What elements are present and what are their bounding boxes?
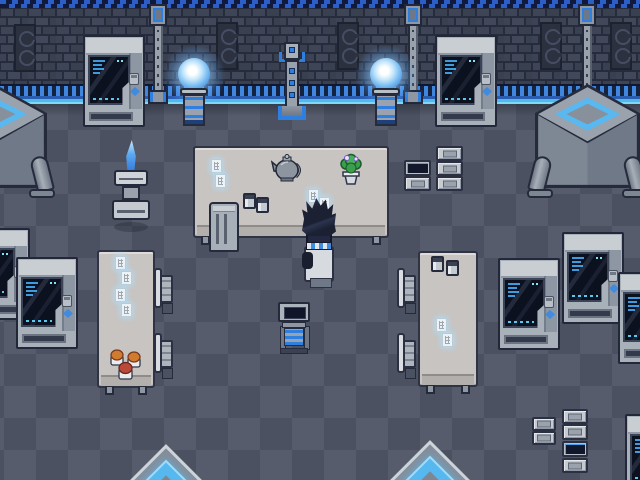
terminal-screen — [88, 55, 130, 105]
crate-bottom-d4 — [562, 458, 588, 473]
speaker-circle-icon — [19, 31, 35, 47]
right-table-mug-2 — [446, 260, 459, 276]
main-table-paper-1 — [211, 159, 222, 173]
terminal-screen — [567, 252, 609, 302]
pipe-flange — [29, 189, 55, 198]
crate-bottom-c1 — [532, 417, 556, 431]
pedestal-shadow — [114, 222, 148, 232]
seated-character[interactable] — [300, 198, 338, 292]
terminal-right-upper[interactable] — [562, 232, 624, 324]
left-table-paper-4 — [121, 303, 132, 317]
crate-mid-b1 — [436, 146, 463, 161]
terminal-screen — [623, 292, 640, 342]
totem-light — [289, 68, 295, 74]
terminal-slot — [22, 334, 66, 343]
table-leg — [138, 385, 147, 395]
cart-rail — [304, 326, 310, 350]
terminal-screen — [21, 277, 63, 327]
right-table-chair-1 — [397, 266, 417, 316]
orb-lamp-right — [368, 58, 404, 128]
chair-leg — [405, 303, 416, 314]
terminal-screen — [503, 278, 545, 328]
terminal-right-edge[interactable] — [618, 272, 640, 364]
character-belt — [306, 242, 332, 250]
teleporter-pad-bottom-center[interactable] — [365, 443, 495, 480]
crate-mid-b2 — [436, 161, 463, 176]
terminal-top-left[interactable] — [83, 35, 145, 127]
speaker-circle-icon — [342, 29, 358, 45]
lamp-base — [183, 94, 205, 126]
teleporter-cube-top-right[interactable] — [535, 84, 640, 188]
cart-neck — [282, 322, 306, 328]
terminal-top-right[interactable] — [435, 35, 497, 127]
orange-lid-jars — [108, 346, 144, 382]
game-scene[interactable] — [0, 0, 640, 480]
chair-back — [397, 268, 405, 308]
main-table-paper-2 — [215, 174, 226, 188]
table-leg — [105, 385, 114, 395]
pillar-stem — [582, 26, 592, 92]
right-table-mug-1 — [431, 256, 444, 272]
speaker-circle-icon — [19, 50, 35, 66]
main-table-mug-1 — [243, 193, 256, 209]
crate-mid-b3 — [436, 176, 463, 191]
wall-speaker-panel-5 — [610, 22, 632, 70]
signal-totem — [276, 42, 308, 124]
pedestal-bowl — [114, 170, 148, 186]
chair-back — [154, 268, 162, 308]
speaker-circle-icon — [615, 48, 631, 64]
crate-mid-a2 — [404, 176, 431, 191]
lamp-base — [375, 94, 397, 126]
terminal-slot — [504, 335, 548, 344]
terminal-bottom-edge[interactable] — [625, 414, 640, 480]
crate-bottom-d1 — [562, 409, 588, 424]
right-table-paper-1 — [436, 318, 447, 332]
orb-lamp-left — [176, 58, 212, 128]
terminal-knob[interactable] — [62, 295, 72, 307]
character-arm — [302, 252, 313, 269]
terminal-screen — [440, 55, 482, 105]
wall-top-trim — [0, 0, 640, 8]
left-table-paper-1 — [115, 256, 126, 270]
table-radiator — [209, 202, 239, 252]
pipe-flange — [527, 189, 553, 198]
chair-back — [154, 333, 162, 373]
terminal-slot — [624, 349, 640, 358]
crate-bottom-c2 — [532, 431, 556, 445]
terminal-knob[interactable] — [608, 270, 618, 282]
table-leg — [372, 235, 381, 245]
left-table-paper-3 — [115, 288, 126, 302]
terminal-screen — [0, 248, 15, 298]
wall-speaker-panel-1 — [14, 24, 36, 72]
terminal-top-cap — [628, 417, 640, 434]
right-table-chair-2 — [397, 331, 417, 381]
crate-bottom-d2 — [562, 424, 588, 440]
terminal-left[interactable] — [16, 257, 78, 349]
speaker-circle-icon — [615, 29, 631, 45]
blue-flame-pedestal — [108, 140, 154, 240]
glowing-orb — [178, 58, 210, 90]
left-table-chair-1 — [154, 266, 174, 316]
potted-flower — [339, 152, 363, 186]
terminal-knob[interactable] — [544, 296, 554, 308]
glowing-orb — [370, 58, 402, 90]
left-table-chair-2 — [154, 331, 174, 381]
teapot — [271, 154, 301, 182]
right-table-paper-2 — [442, 333, 453, 347]
chair-leg — [162, 303, 173, 314]
terminal-slot — [441, 112, 485, 121]
teleporter-pad-bottom-left[interactable] — [101, 447, 231, 480]
crate-bottom-d3 — [562, 441, 588, 457]
teleporter-cube-top-left[interactable] — [0, 84, 47, 188]
terminal-right-lower[interactable] — [498, 258, 560, 350]
terminal-screen — [630, 434, 640, 480]
terminal-top-cap — [621, 275, 640, 292]
chair-leg — [405, 368, 416, 379]
wall-speaker-panel-4 — [540, 22, 562, 70]
totem-light — [289, 80, 295, 86]
crate-mid-a1 — [404, 160, 431, 176]
cart-screen-head — [278, 302, 310, 322]
table-leg — [426, 384, 435, 394]
chair-back — [397, 333, 405, 373]
pillar-cap — [578, 4, 596, 26]
pedestal-stem — [122, 186, 140, 200]
cart-coil — [284, 328, 304, 346]
table-leg — [461, 384, 470, 394]
pillar-cap — [404, 4, 422, 26]
mobile-console-cart[interactable] — [272, 302, 316, 354]
pillar-cap — [149, 4, 167, 26]
terminal-knob[interactable] — [481, 73, 491, 85]
chair-leg — [162, 368, 173, 379]
cart-base — [280, 348, 308, 354]
speaker-circle-icon — [545, 48, 561, 64]
left-table-paper-2 — [121, 271, 132, 285]
terminal-slot — [89, 112, 133, 121]
speaker-circle-icon — [221, 29, 237, 45]
terminal-slot — [568, 309, 612, 318]
totem-light — [289, 92, 295, 98]
totem-head — [284, 42, 300, 60]
terminal-knob[interactable] — [129, 73, 139, 85]
character-hair — [302, 198, 336, 236]
main-table-mug-2 — [256, 197, 269, 213]
speaker-circle-icon — [545, 29, 561, 45]
pipe-flange — [622, 189, 640, 198]
pedestal-base — [112, 200, 150, 220]
cart-screen — [284, 307, 306, 319]
totem-base — [278, 106, 306, 120]
